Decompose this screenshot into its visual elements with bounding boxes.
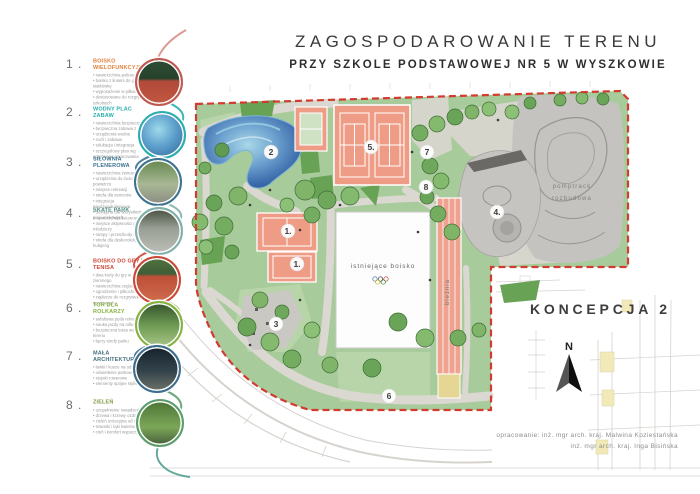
plan-marker-1b: 1. xyxy=(290,257,304,271)
small-court xyxy=(295,107,327,151)
plan-marker-6: 6 xyxy=(382,389,396,403)
legend-photo-2 xyxy=(138,111,186,159)
plan-marker-4: 4. xyxy=(490,205,504,219)
plan-marker-8: 8 xyxy=(419,180,433,194)
legend-heading: ZIELEŃ xyxy=(93,399,151,405)
plan-marker-3: 3 xyxy=(269,317,283,331)
credits: opracowanie: inż. mgr arch. kraj. Malwin… xyxy=(496,430,678,452)
page-subtitle: PRZY SZKOLE PODSTAWOWEJ NR 5 W WYSZKOWIE xyxy=(272,59,684,71)
credits-line-1: opracowanie: inż. mgr arch. kraj. Malwin… xyxy=(496,430,678,441)
svg-text:1.: 1. xyxy=(284,226,291,236)
legend-photo-3 xyxy=(134,158,182,206)
north-arrow-icon: N xyxy=(556,341,582,392)
legend-number: 5 . xyxy=(66,257,82,271)
svg-text:7: 7 xyxy=(425,147,430,157)
legend-photo-1 xyxy=(135,58,183,106)
pumptrack-label-2: rozbudowa xyxy=(552,196,592,202)
legend-number: 3 . xyxy=(66,155,82,169)
page-title: ZAGOSPODAROWANIE TERENU xyxy=(272,32,684,52)
svg-text:4.: 4. xyxy=(493,207,500,217)
svg-text:1.: 1. xyxy=(293,259,300,269)
legend-photo-4 xyxy=(135,207,183,255)
plan-marker-2: 2 xyxy=(264,145,278,159)
legend-number: 7 . xyxy=(66,349,82,363)
legend-photo-6 xyxy=(135,301,183,349)
plan-marker-7: 7 xyxy=(420,145,434,159)
poster-sheet: pomptrack rozbudowa xyxy=(0,0,700,494)
credits-line-2: inż. mgr arch. kraj. Inga Bisińska xyxy=(496,441,678,452)
existing-field-label: istniejące boisko xyxy=(351,263,416,270)
title-block: ZAGOSPODAROWANIE TERENU PRZY SZKOLE PODS… xyxy=(272,32,684,71)
existing-field: istniejące boisko xyxy=(336,212,430,348)
svg-text:8: 8 xyxy=(424,182,429,192)
legend-photo-7 xyxy=(133,345,181,393)
legend-photo-8 xyxy=(136,399,184,447)
legend-number: 2 . xyxy=(66,105,82,119)
legend-number: 1 . xyxy=(66,57,82,71)
running-track-label: bieżnia xyxy=(445,279,451,305)
pumptrack-label-1: pomptrack xyxy=(553,184,592,190)
plan-marker-1a: 1. xyxy=(281,224,295,238)
legend-number: 8 . xyxy=(66,398,82,412)
svg-text:3: 3 xyxy=(274,319,279,329)
plan-marker-5: 5. xyxy=(364,140,378,154)
north-label: N xyxy=(565,341,573,353)
svg-text:2: 2 xyxy=(269,147,274,157)
legend-photo-5 xyxy=(133,256,181,304)
legend-number: 6 . xyxy=(66,301,82,315)
legend-number: 4 . xyxy=(66,206,82,220)
concept-label: KONCEPCJA 2 xyxy=(530,301,671,317)
svg-text:6: 6 xyxy=(387,391,392,401)
svg-text:5.: 5. xyxy=(367,142,374,152)
legend-heading: WODNY PLAC ZABAW xyxy=(93,106,151,119)
